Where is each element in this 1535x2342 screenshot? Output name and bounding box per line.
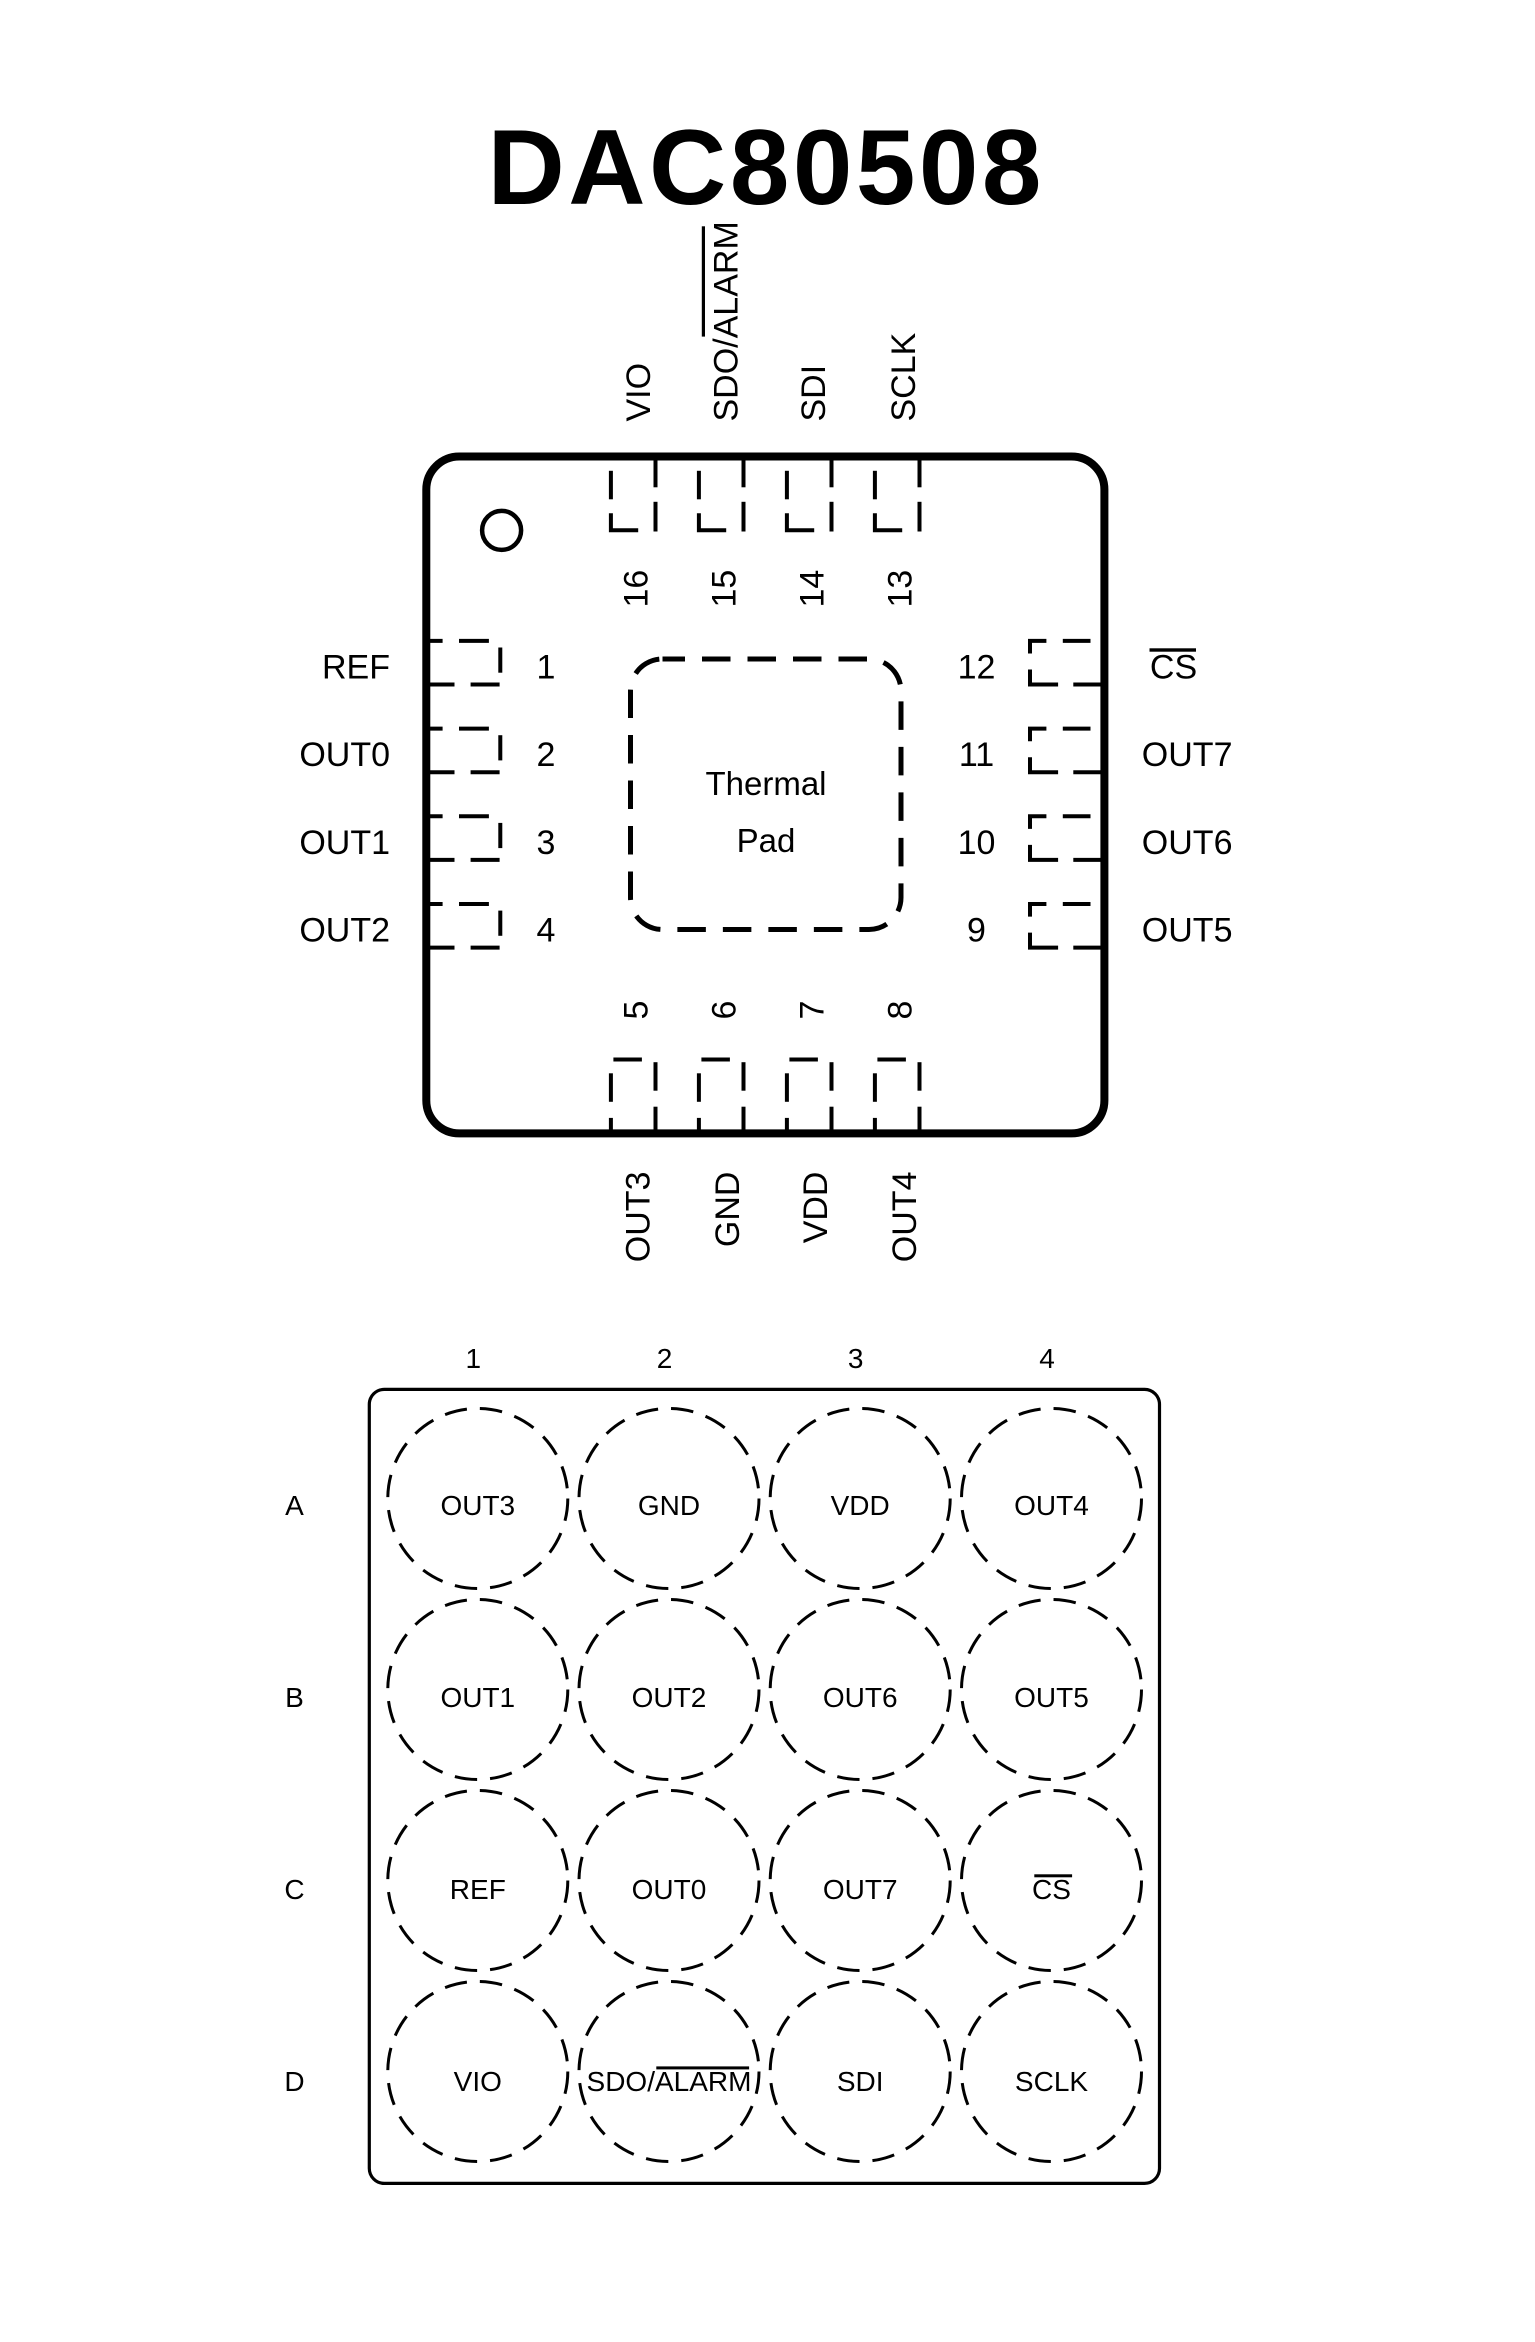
svg-text:14: 14 bbox=[794, 570, 832, 608]
svg-text:OUT7: OUT7 bbox=[823, 1874, 898, 1905]
svg-text:SCLK: SCLK bbox=[885, 332, 923, 421]
svg-text:8: 8 bbox=[882, 1001, 920, 1020]
svg-text:OUT4: OUT4 bbox=[1014, 1490, 1089, 1521]
svg-text:Pad: Pad bbox=[737, 822, 796, 859]
svg-text:OUT2: OUT2 bbox=[632, 1682, 707, 1713]
svg-text:VIO: VIO bbox=[454, 2066, 502, 2097]
svg-text:10: 10 bbox=[958, 824, 996, 862]
svg-text:VDD: VDD bbox=[797, 1172, 835, 1244]
svg-text:4: 4 bbox=[1039, 1343, 1055, 1374]
svg-text:16: 16 bbox=[618, 570, 656, 608]
svg-text:OUT1: OUT1 bbox=[299, 824, 390, 862]
svg-text:4: 4 bbox=[537, 912, 556, 950]
svg-text:CS: CS bbox=[1150, 649, 1197, 687]
svg-text:GND: GND bbox=[638, 1490, 700, 1521]
svg-text:9: 9 bbox=[967, 912, 986, 950]
svg-text:Thermal: Thermal bbox=[705, 765, 826, 802]
svg-text:3: 3 bbox=[537, 824, 556, 862]
svg-text:REF: REF bbox=[450, 1874, 506, 1905]
svg-text:OUT1: OUT1 bbox=[440, 1682, 515, 1713]
svg-text:VIO: VIO bbox=[620, 363, 658, 422]
svg-text:C: C bbox=[284, 1874, 304, 1905]
svg-text:OUT6: OUT6 bbox=[823, 1682, 898, 1713]
svg-text:7: 7 bbox=[794, 1001, 832, 1020]
svg-text:OUT0: OUT0 bbox=[632, 1874, 707, 1905]
svg-text:SCLK: SCLK bbox=[1015, 2066, 1088, 2097]
svg-text:OUT6: OUT6 bbox=[1142, 824, 1233, 862]
svg-text:15: 15 bbox=[706, 570, 744, 608]
svg-text:1: 1 bbox=[537, 649, 556, 687]
svg-text:OUT0: OUT0 bbox=[299, 736, 390, 774]
svg-text:OUT3: OUT3 bbox=[440, 1490, 515, 1521]
svg-text:B: B bbox=[285, 1682, 304, 1713]
svg-text:3: 3 bbox=[848, 1343, 864, 1374]
svg-text:13: 13 bbox=[882, 570, 920, 608]
svg-text:1: 1 bbox=[466, 1343, 482, 1374]
svg-text:SDO/ALARM: SDO/ALARM bbox=[587, 2066, 752, 2097]
svg-text:SDI: SDI bbox=[795, 365, 833, 422]
svg-text:OUT5: OUT5 bbox=[1014, 1682, 1089, 1713]
svg-text:OUT4: OUT4 bbox=[886, 1172, 924, 1263]
svg-text:OUT7: OUT7 bbox=[1142, 736, 1233, 774]
svg-text:OUT5: OUT5 bbox=[1142, 912, 1233, 950]
svg-text:5: 5 bbox=[618, 1001, 656, 1020]
svg-text:12: 12 bbox=[958, 649, 996, 687]
svg-text:GND: GND bbox=[709, 1172, 747, 1248]
svg-text:OUT2: OUT2 bbox=[299, 912, 390, 950]
svg-text:VDD: VDD bbox=[831, 1490, 890, 1521]
svg-text:2: 2 bbox=[657, 1343, 673, 1374]
svg-text:A: A bbox=[285, 1490, 304, 1521]
svg-text:SDO/ALARM: SDO/ALARM bbox=[707, 221, 745, 421]
svg-text:2: 2 bbox=[537, 736, 556, 774]
svg-text:6: 6 bbox=[706, 1001, 744, 1020]
svg-text:DAC80508: DAC80508 bbox=[488, 107, 1045, 227]
svg-text:D: D bbox=[284, 2066, 304, 2097]
svg-text:REF: REF bbox=[322, 649, 390, 687]
svg-text:OUT3: OUT3 bbox=[620, 1172, 658, 1263]
svg-text:SDI: SDI bbox=[837, 2066, 884, 2097]
svg-text:CS: CS bbox=[1032, 1874, 1071, 1905]
svg-text:11: 11 bbox=[959, 736, 994, 774]
